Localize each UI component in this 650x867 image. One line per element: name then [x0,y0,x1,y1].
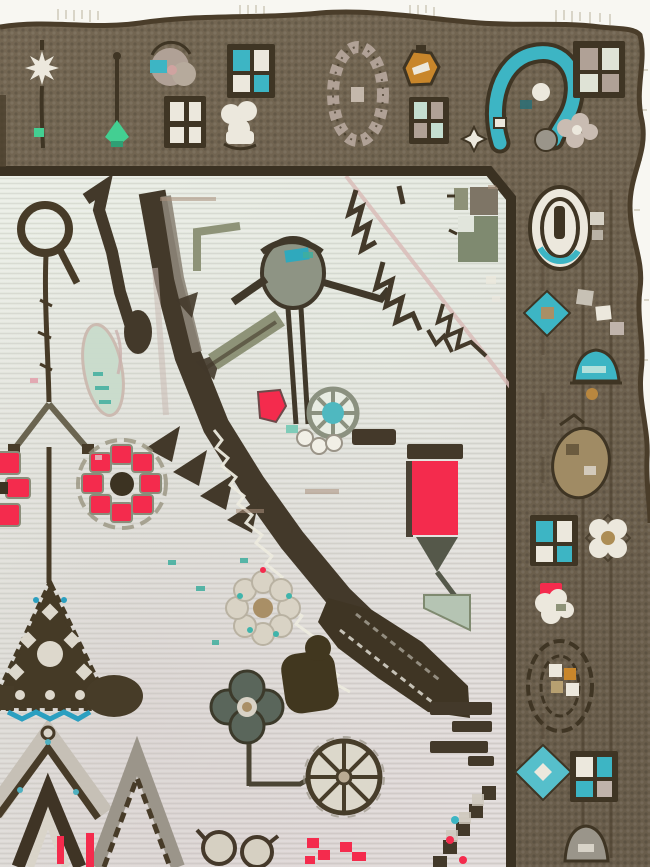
teal-disc [322,402,344,424]
rug-photo-canvas [0,0,650,867]
motif-pane-square-4 [530,515,578,566]
motif-corner-pane-square [573,41,625,98]
border-left-mark [0,95,6,167]
mint-fleck [34,128,44,137]
motif-pane-square-2 [227,44,275,98]
motif-pane-square-1 [164,96,206,148]
motif-pane-square-3 [409,97,449,144]
rug-photograph [0,0,650,867]
motif-pane-square-5 [570,751,618,802]
white-star [25,51,59,85]
tulip-red-panel [412,461,458,535]
